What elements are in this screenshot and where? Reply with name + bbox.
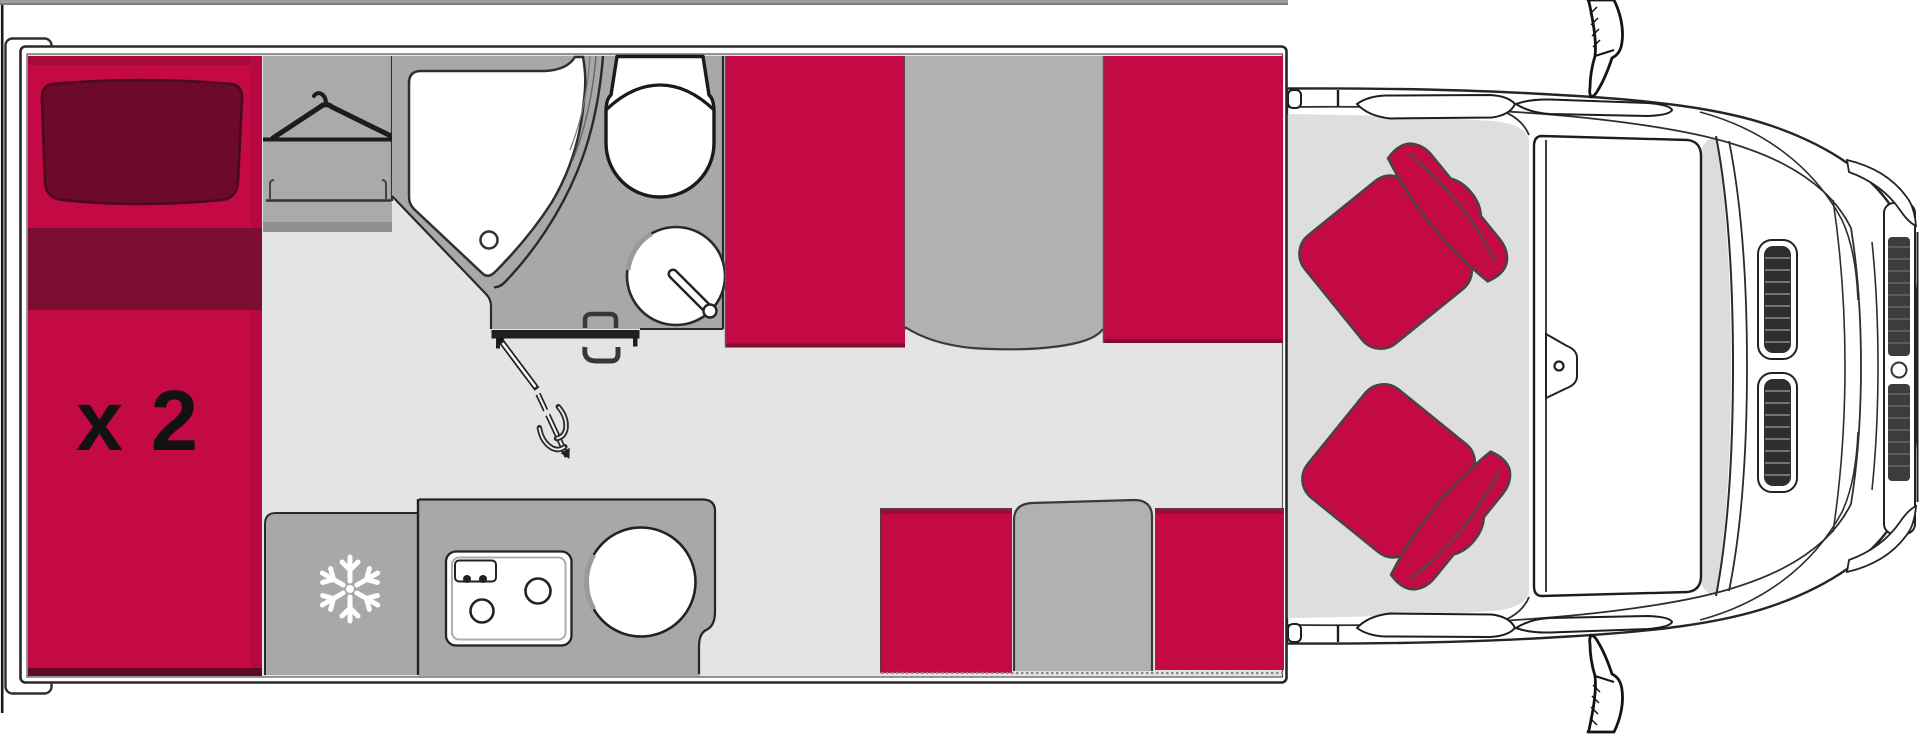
svg-text:x 2: x 2 <box>76 374 200 469</box>
